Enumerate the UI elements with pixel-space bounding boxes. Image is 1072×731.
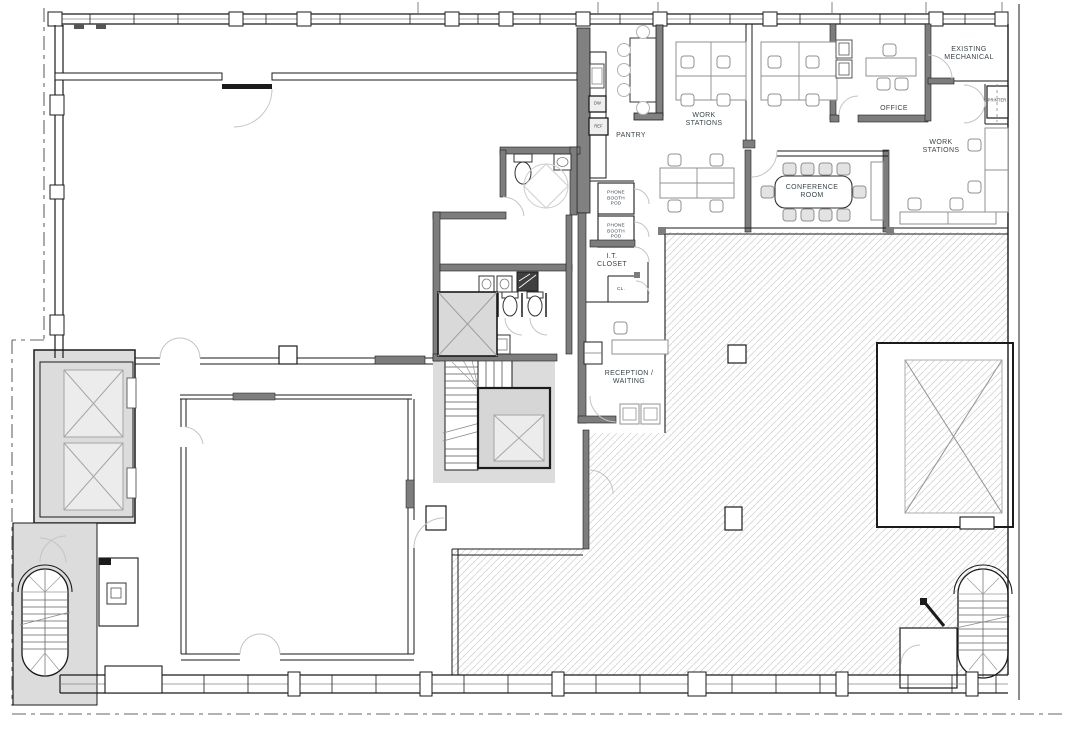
floor-plan-sheet: PANTRY WORK STATIONS OFFICE EXISTING MEC… — [0, 0, 1072, 731]
elevator-core-west — [34, 350, 136, 523]
elevator-core-center — [433, 357, 555, 483]
printer-station — [987, 84, 1008, 122]
shaft-east — [877, 343, 1013, 529]
it-closet — [586, 240, 649, 302]
phone-booth-pods — [598, 183, 649, 247]
office-furniture — [836, 40, 916, 90]
reception-furniture — [584, 322, 668, 424]
workstations-right-furniture — [900, 128, 1008, 224]
floor-plan-drawing — [0, 0, 1072, 731]
pantry-fixtures — [589, 26, 656, 179]
conference-room-furniture — [761, 162, 883, 221]
grid-ticks — [418, 2, 1002, 13]
